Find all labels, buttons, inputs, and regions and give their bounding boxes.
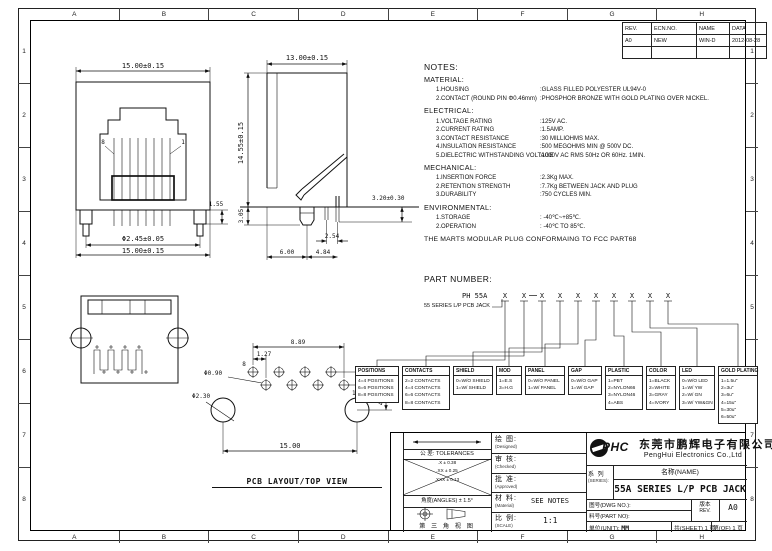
rev-header: REV.	[623, 23, 652, 35]
dim-side-pin: 3.20±0.30	[372, 195, 405, 202]
pn-box-entry: 2=3u"	[721, 385, 755, 392]
revision-table: REV. ECN.NO. NAME DATA A0 NEW WIN-D 2012…	[622, 22, 767, 59]
zone-label: G	[568, 531, 658, 543]
front-view-drawing: 15.00±0.15 8 1 1.55 Φ2.45±0.05	[56, 58, 231, 263]
pn-box-entry: 1=E.S	[499, 378, 519, 385]
note-row: 5.DIELECTRIC WITHSTANDING VOLTAGE:1000V …	[424, 152, 758, 161]
zone-label: B	[120, 8, 210, 20]
zone-label: 5	[18, 276, 30, 340]
product-name: 55A SERIES L/P PCB JACK	[613, 484, 747, 495]
pn-box-gap: GAP 0=W/O GAP1=W/ GAP	[568, 366, 602, 395]
material-label: 材 料: (Material)	[495, 493, 517, 508]
dim-front-bottom: 15.00±0.15	[122, 247, 164, 255]
tolerances-label: 公 差: TOLERANCES	[403, 449, 491, 459]
part-no-label: 料号(PART NO):	[589, 512, 630, 520]
rev-header: ECN.NO.	[652, 23, 697, 35]
note-row: 2.CONTACT (ROUND PIN Φ0.46mm):PHOSPHOR B…	[424, 95, 758, 104]
notes-heading: NOTES:	[424, 61, 758, 73]
designed-label: 绘 图: (Designed)	[495, 434, 517, 449]
zone-label: D	[299, 8, 389, 20]
pn-box-entry: 3=NYLON46	[608, 392, 640, 399]
pn-box-entry: 0=W/O LED	[682, 378, 712, 385]
company-block: 东莞市鹏辉电子有限公司 PengHui Electronics Co.,Ltd	[639, 436, 747, 459]
pn-field: X	[576, 292, 581, 300]
dim-side-foot: 3.05	[238, 208, 245, 223]
pn-box-title: POSITIONS	[356, 367, 398, 376]
unit-value: MM	[621, 524, 629, 532]
pn-box-entry: 1=W/ PANEL	[528, 385, 562, 392]
pn-box-entry: 3=6u"	[721, 392, 755, 399]
zone-label: C	[209, 8, 299, 20]
pn-box-gold-plating: GOLD PLATING 1=1.5u"2=3u"3=6u"4=15u"5=30…	[718, 366, 758, 424]
pn-box-title: COLOR	[647, 367, 675, 376]
pn-box-entry: 3=GRAY	[649, 392, 673, 399]
pn-box-title: MOD	[497, 367, 521, 376]
rev-cell-empty	[652, 47, 697, 59]
rev-cn: 版本	[691, 500, 719, 508]
pn-box-entry: 4=IVORY	[649, 400, 673, 407]
zone-label: 2	[18, 84, 30, 148]
rev-cell: NEW	[652, 35, 697, 47]
pn-box-entry: 5=30u"	[721, 407, 755, 414]
approved-cn: 批 准:	[495, 474, 517, 484]
pcb-pin-8: 8	[242, 361, 246, 368]
unit-label: 单位(UNIT):	[589, 526, 620, 532]
rev-cell-empty	[697, 47, 730, 59]
unit-row: 单位(UNIT): MM	[589, 523, 629, 532]
pn-box-entry: 4=4 POSITIONS	[358, 378, 396, 385]
dim-pcb-width: 15.00	[279, 442, 300, 450]
pn-box-plastic: PLASTIC 1=PBT2=NYLON663=NYLON464=ABS	[605, 366, 643, 410]
pn-field: X	[594, 292, 599, 300]
sheet-of: 第(OF) 1 页	[713, 523, 743, 532]
pn-box-positions: POSITIONS 4=4 POSITIONS6=6 POSITIONS8=8 …	[355, 366, 399, 403]
notes-footer: THE MARTS MODULAR PLUG CONFORMAING TO FC…	[424, 235, 758, 245]
company-name-en: PengHui Electronics Co.,Ltd	[639, 452, 747, 459]
material-en: (Material)	[495, 503, 517, 508]
dim-front-top: 15.00±0.15	[122, 62, 164, 70]
company-name-cn: 东莞市鹏辉电子有限公司	[639, 436, 747, 452]
note-row: 2.RETENTION STRENGTH:7.7Kg BETWEEN JACK …	[424, 183, 758, 192]
checked-label: 审 核: (Checked)	[495, 454, 517, 469]
pn-box-entry: 6=50u"	[721, 414, 755, 421]
pn-box-entry: 1=PBT	[608, 378, 640, 385]
notes-section-mechanical: MECHANICAL: 1.INSERTION FORCE:2.3Kg MAX.…	[424, 163, 758, 200]
dim-side-width: 13.00±0.15	[286, 54, 328, 62]
angles-tolerance: 角度(ANGLES) ± 1.5°	[403, 495, 491, 507]
part-number-heading: PART NUMBER:	[424, 274, 492, 284]
pin-label-8: 8	[101, 139, 105, 146]
zone-label: F	[478, 8, 568, 20]
rev-header: DATA	[730, 23, 767, 35]
pn-box-entry: 0=W/O PANEL	[528, 378, 562, 385]
rev-cell: 2012-08-28	[730, 35, 767, 47]
pn-box-entry: 3=H.G	[499, 385, 519, 392]
rev-cell: WIN-D	[697, 35, 730, 47]
dim-front-leg: Φ2.45±0.05	[122, 235, 164, 243]
note-row: 1.INSERTION FORCE:2.3Kg MAX.	[424, 174, 758, 183]
note-row: 4.INSULATION RESISTANCE:500 MEGOHMS MIN …	[424, 143, 758, 152]
pn-box-entry: 4=15u"	[721, 400, 755, 407]
notes-block: NOTES: MATERIAL: 1.HOUSING:GLASS FILLED …	[424, 61, 758, 245]
note-row: 1.STORAGE: -40℃~+85℃.	[424, 214, 758, 223]
pn-box-entry: 8=8 CONTACTS	[405, 400, 447, 407]
pn-box-entry: 4=ABS	[608, 400, 640, 407]
pn-box-shield: SHIELD 0=W/O SHIELD1=W/ SHIELD	[453, 366, 493, 395]
pn-box-entry: 0=W/O SHIELD	[456, 378, 490, 385]
pn-box-entry: 1=BLACK	[649, 378, 673, 385]
dwg-no-label: 图号(DWG NO.):	[589, 501, 631, 509]
scale-label: 比 例: (SCALE)	[495, 513, 517, 528]
zone-labels-left: 12345678	[18, 20, 30, 531]
note-row: 1.VOLTAGE RATING:125V AC.	[424, 118, 758, 127]
zone-label: 1	[18, 20, 30, 84]
checked-en: (Checked)	[495, 464, 517, 469]
zone-label: 4	[18, 212, 30, 276]
pn-box-entry: 8=8 POSITIONS	[358, 392, 396, 399]
scale-value: 1:1	[543, 516, 557, 525]
pn-box-title: SHIELD	[454, 367, 492, 376]
notes-section-electrical: ELECTRICAL: 1.VOLTAGE RATING:125V AC.2.C…	[424, 106, 758, 160]
series-label: 系 列 (SERIES):	[588, 469, 612, 483]
pn-field: X	[666, 292, 671, 300]
pn-box-entry: 2=NYLON66	[608, 385, 640, 392]
pn-box-entry: 2=2 CONTACTS	[405, 378, 447, 385]
zone-label: E	[389, 8, 479, 20]
pn-box-title: PANEL	[526, 367, 564, 376]
zone-label: 6	[18, 340, 30, 404]
rev-header: NAME	[697, 23, 730, 35]
company-logo: PHC	[590, 438, 636, 460]
notes-section-material: MATERIAL: 1.HOUSING:GLASS FILLED POLYEST…	[424, 75, 758, 103]
notes-section-environmental: ENVIRONMENTAL: 1.STORAGE: -40℃~+85℃.2.OP…	[424, 203, 758, 231]
pn-field: X	[540, 292, 545, 300]
pn-box-entry: 3=W/ YW&GN	[682, 400, 712, 407]
zone-label: F	[478, 531, 568, 543]
pn-box-entry: 0=W/O GAP	[571, 378, 599, 385]
rev-label: 版本 REV.	[691, 500, 719, 514]
sheet-count: 共(SHEET) 1 页	[674, 523, 715, 532]
rev-en: REV.	[691, 508, 719, 514]
dim-pcb-hole-small: Φ0.90	[204, 370, 222, 377]
note-row: 3.CONTACT RESISTANCE:30 MILLIOHMS MAX.	[424, 135, 758, 144]
section-title: ELECTRICAL:	[424, 106, 758, 116]
pn-box-panel: PANEL 0=W/O PANEL1=W/ PANEL	[525, 366, 565, 395]
zone-label: H	[657, 531, 746, 543]
pn-prefix: PH 55A	[462, 292, 488, 300]
title-block: 公 差: TOLERANCES .X ± 0.38.XX ± 0.25.XXX …	[390, 432, 746, 531]
pn-box-entry: 2=W/ GN	[682, 392, 712, 399]
tolerance-row: .X ± 0.38	[403, 459, 491, 467]
dimension-arrow-legend	[403, 433, 491, 449]
zone-labels-top: ABCDEFGH	[30, 8, 746, 20]
third-angle-symbol	[403, 507, 491, 521]
pn-field: X	[630, 292, 635, 300]
pn-field: X	[558, 292, 563, 300]
pin-label-1: 1	[181, 139, 185, 146]
pn-field: X	[648, 292, 653, 300]
pn-box-title: CONTACTS	[403, 367, 449, 376]
checked-cn: 审 核:	[495, 454, 517, 464]
note-row: 2.OPERATION: -40℃ TO 85℃.	[424, 223, 758, 232]
dim-front-side: 1.55	[209, 201, 224, 208]
pn-box-entry: 6=6 POSITIONS	[358, 385, 396, 392]
pn-field: X	[612, 292, 617, 300]
designed-en: (Designed)	[495, 444, 517, 449]
pn-box-entry: 1=1.5u"	[721, 378, 755, 385]
designed-cn: 绘 图:	[495, 434, 517, 444]
pn-box-entry: 4=4 CONTACTS	[405, 385, 447, 392]
approved-en: (Approved)	[495, 484, 517, 489]
pn-box-title: PLASTIC	[606, 367, 642, 376]
series-cn: 系 列	[588, 469, 612, 478]
logo-text: PHC	[602, 440, 629, 454]
pn-box-led: LED 0=W/O LED1=W/ YW2=W/ GN3=W/ YW&GN	[679, 366, 715, 410]
pn-box-entry: 2=WHITE	[649, 385, 673, 392]
zone-label: G	[568, 8, 658, 20]
zone-label: 8	[746, 468, 758, 531]
pn-box-title: GOLD PLATING	[719, 367, 757, 376]
part-number-code: PH 55A X X X X X X X X X X	[350, 286, 760, 366]
dim-pcb-offset: 1.27	[257, 351, 272, 358]
zone-label: D	[299, 531, 389, 543]
dim-pcb-span: 8.89	[291, 339, 306, 346]
note-row: 3.DURABILITY:750 CYCLES MIN.	[424, 191, 758, 200]
rev-cell: A0	[623, 35, 652, 47]
third-angle-label: 第 三 角 视 图	[403, 521, 491, 530]
dim-side-b: 4.84	[316, 249, 331, 256]
tolerance-row: .XXX ± 0.13	[403, 476, 491, 484]
section-title: ENVIRONMENTAL:	[424, 203, 758, 213]
pcb-caption: PCB LAYOUT/TOP VIEW	[212, 477, 382, 488]
zone-labels-bottom: ABCDEFGH	[30, 531, 746, 543]
pn-field: X	[503, 292, 508, 300]
name-label: 名称(NAME)	[613, 466, 747, 476]
section-title: MECHANICAL:	[424, 163, 758, 173]
pn-box-color: COLOR 1=BLACK2=WHITE3=GRAY4=IVORY	[646, 366, 676, 410]
tolerance-row: .XX ± 0.25	[403, 467, 491, 475]
note-row: 1.HOUSING:GLASS FILLED POLYESTER UL94V-0	[424, 86, 758, 95]
rev-value: A0	[719, 503, 747, 512]
zone-label: H	[657, 8, 746, 20]
material-cn: 材 料:	[495, 493, 517, 503]
pn-box-entry: 1=W/ GAP	[571, 385, 599, 392]
drawing-sheet: ABCDEFGH ABCDEFGH 12345678 12345678 REV.…	[0, 0, 772, 551]
pn-box-title: LED	[680, 367, 714, 376]
dim-side-a: 6.00	[280, 249, 295, 256]
material-value: SEE NOTES	[531, 497, 569, 505]
dim-pcb-hole-big: Φ2.30	[192, 393, 210, 400]
pn-box-entry: 6=6 CONTACTS	[405, 392, 447, 399]
dim-side-height: 14.55±0.15	[237, 122, 245, 164]
rev-cell-empty	[730, 47, 767, 59]
zone-label: B	[120, 531, 210, 543]
scale-en: (SCALE)	[495, 523, 517, 528]
zone-label: C	[209, 531, 299, 543]
zone-label: 3	[18, 148, 30, 212]
dim-side-pitch: 2.54	[325, 233, 340, 240]
zone-label: A	[30, 531, 120, 543]
zone-label: 8	[18, 468, 30, 531]
section-title: MATERIAL:	[424, 75, 758, 85]
rev-cell-empty	[623, 47, 652, 59]
series-en: (SERIES):	[588, 478, 612, 483]
zone-label: E	[389, 531, 479, 543]
side-view-drawing: 13.00±0.15 14.55±0.15 3.05 3.20±0.30 2.5…	[232, 48, 427, 268]
pn-box-entry: 1=W/ YW	[682, 385, 712, 392]
scale-cn: 比 例:	[495, 513, 517, 523]
pn-box-title: GAP	[569, 367, 601, 376]
third-angle-projection: 第 三 角 视 图	[403, 507, 491, 532]
pn-field: X	[522, 292, 527, 300]
tolerance-table: .X ± 0.38.XX ± 0.25.XXX ± 0.13	[403, 459, 491, 495]
pn-box-contacts: CONTACTS 2=2 CONTACTS4=4 CONTACTS6=6 CON…	[402, 366, 450, 410]
pn-box-mod: MOD 1=E.S3=H.G	[496, 366, 522, 395]
pn-box-entry: 1=W/ SHIELD	[456, 385, 490, 392]
note-row: 2.CURRENT RATING:1.5AMP.	[424, 126, 758, 135]
top-view-drawing	[64, 288, 189, 393]
zone-label: 7	[18, 404, 30, 468]
approved-label: 批 准: (Approved)	[495, 474, 517, 489]
zone-label: A	[30, 8, 120, 20]
